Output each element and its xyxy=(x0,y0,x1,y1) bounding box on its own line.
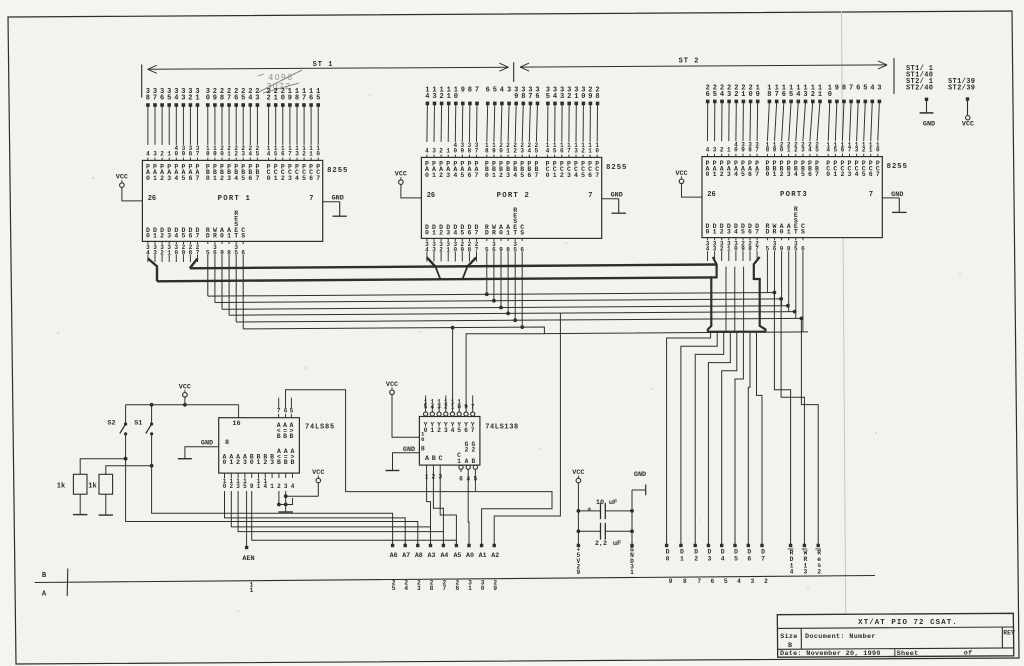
svg-text:4: 4 xyxy=(174,94,178,102)
svg-text:AEN: AEN xyxy=(242,555,254,563)
svg-text:5: 5 xyxy=(181,232,185,239)
svg-text:GND: GND xyxy=(923,121,935,129)
svg-text:0: 0 xyxy=(316,150,320,157)
svg-text:7: 7 xyxy=(153,94,157,102)
svg-text:4: 4 xyxy=(248,94,252,102)
svg-text:B: B xyxy=(284,459,288,466)
svg-text:A8: A8 xyxy=(415,552,423,559)
svg-text:6: 6 xyxy=(748,229,752,236)
svg-text:3: 3 xyxy=(417,585,421,592)
svg-text:3: 3 xyxy=(801,147,805,154)
svg-text:1: 1 xyxy=(270,483,274,490)
svg-text:5: 5 xyxy=(833,147,837,154)
svg-text:D: D xyxy=(694,549,698,556)
svg-text:2: 2 xyxy=(780,171,784,178)
svg-text:5: 5 xyxy=(256,150,260,157)
svg-text:S: S xyxy=(520,229,524,236)
svg-text:6: 6 xyxy=(248,175,252,182)
svg-text:1: 1 xyxy=(457,458,461,465)
svg-text:D: D xyxy=(485,229,489,236)
svg-text:2: 2 xyxy=(234,150,238,157)
svg-text:5: 5 xyxy=(392,585,396,592)
svg-text:3: 3 xyxy=(750,578,754,585)
svg-text:0: 0 xyxy=(453,147,457,154)
svg-text:1: 1 xyxy=(446,147,450,154)
svg-text:5: 5 xyxy=(863,85,867,93)
svg-text:4: 4 xyxy=(737,578,741,585)
svg-text:3: 3 xyxy=(877,85,881,93)
svg-text:3: 3 xyxy=(446,229,450,236)
svg-text:1: 1 xyxy=(229,459,233,466)
svg-text:1: 1 xyxy=(250,587,254,594)
svg-text:S1: S1 xyxy=(134,420,142,428)
svg-text:1: 1 xyxy=(153,232,157,239)
svg-text:6: 6 xyxy=(464,427,468,434)
svg-text:7: 7 xyxy=(697,578,701,585)
svg-text:1: 1 xyxy=(213,175,217,182)
svg-text:D: D xyxy=(721,549,725,556)
svg-text:6: 6 xyxy=(869,171,873,178)
svg-text:2: 2 xyxy=(840,171,844,178)
svg-text:7: 7 xyxy=(588,192,592,200)
svg-text:2: 2 xyxy=(817,568,821,575)
svg-text:3: 3 xyxy=(567,172,571,179)
svg-text:1: 1 xyxy=(630,569,634,576)
svg-text:4: 4 xyxy=(721,556,725,563)
svg-text:7: 7 xyxy=(755,171,759,178)
svg-text:7: 7 xyxy=(849,85,853,93)
svg-text:8: 8 xyxy=(430,585,434,592)
svg-text:6: 6 xyxy=(706,91,710,99)
svg-text:6: 6 xyxy=(856,85,860,93)
svg-text:3: 3 xyxy=(243,459,247,466)
svg-text:9: 9 xyxy=(492,147,496,154)
svg-text:2: 2 xyxy=(471,447,475,454)
svg-text:7: 7 xyxy=(534,172,538,179)
svg-text:9: 9 xyxy=(464,404,468,411)
svg-text:7: 7 xyxy=(475,172,479,179)
svg-text:A: A xyxy=(42,591,47,599)
svg-text:2: 2 xyxy=(465,447,469,454)
svg-text:1: 1 xyxy=(257,483,261,490)
svg-text:1: 1 xyxy=(869,147,873,154)
svg-text:4: 4 xyxy=(404,585,408,592)
svg-text:4: 4 xyxy=(146,150,150,157)
svg-text:7: 7 xyxy=(196,232,200,239)
svg-text:0: 0 xyxy=(250,459,254,466)
svg-text:3: 3 xyxy=(288,175,292,182)
svg-text:3: 3 xyxy=(507,87,511,95)
svg-text:7: 7 xyxy=(227,94,231,102)
svg-text:26: 26 xyxy=(427,192,435,200)
svg-text:4: 4 xyxy=(234,175,238,182)
svg-text:1k: 1k xyxy=(88,483,96,491)
svg-text:5: 5 xyxy=(460,229,464,236)
svg-text:0: 0 xyxy=(223,483,227,490)
svg-text:D: D xyxy=(734,549,738,556)
svg-text:4: 4 xyxy=(267,150,271,157)
svg-text:S2: S2 xyxy=(107,420,115,428)
svg-text:D: D xyxy=(765,229,769,236)
svg-text:1: 1 xyxy=(274,175,278,182)
svg-text:0: 0 xyxy=(734,147,738,154)
svg-text:B: B xyxy=(277,459,281,466)
svg-text:4: 4 xyxy=(794,171,798,178)
svg-text:A1: A1 xyxy=(479,552,487,559)
svg-text:4: 4 xyxy=(430,404,434,411)
svg-text:Sheet: Sheet xyxy=(897,650,919,658)
svg-text:3: 3 xyxy=(707,556,711,563)
svg-text:A: A xyxy=(465,458,469,465)
svg-text:7: 7 xyxy=(815,171,819,178)
svg-text:9: 9 xyxy=(213,94,217,102)
svg-text:2: 2 xyxy=(263,459,267,466)
svg-text:0: 0 xyxy=(267,175,271,182)
svg-text:3: 3 xyxy=(787,171,791,178)
svg-text:9: 9 xyxy=(835,85,839,93)
svg-text:3: 3 xyxy=(727,229,731,236)
svg-text:9: 9 xyxy=(288,94,292,102)
svg-text:4: 4 xyxy=(527,147,531,154)
svg-text:B: B xyxy=(283,433,287,440)
svg-text:5: 5 xyxy=(181,175,185,182)
svg-text:7: 7 xyxy=(528,93,532,101)
svg-text:6: 6 xyxy=(160,94,164,102)
svg-text:8: 8 xyxy=(206,150,210,157)
svg-text:PORT 2: PORT 2 xyxy=(497,192,530,200)
svg-text:4: 4 xyxy=(808,147,812,154)
svg-text:9: 9 xyxy=(741,147,745,154)
svg-text:1: 1 xyxy=(274,94,278,102)
svg-text:5: 5 xyxy=(241,94,245,102)
svg-text:2: 2 xyxy=(581,147,585,154)
svg-text:4: 4 xyxy=(546,147,550,154)
svg-text:Date: November 20, 1990: Date: November 20, 1990 xyxy=(780,650,881,658)
svg-text:1: 1 xyxy=(492,172,496,179)
svg-text:1: 1 xyxy=(167,150,171,157)
svg-text:0: 0 xyxy=(666,556,670,563)
svg-text:5: 5 xyxy=(535,147,539,154)
svg-text:5: 5 xyxy=(243,483,247,490)
svg-text:4: 4 xyxy=(451,427,455,434)
svg-text:4: 4 xyxy=(425,147,429,154)
svg-text:9: 9 xyxy=(773,147,777,154)
svg-text:9: 9 xyxy=(493,585,497,592)
svg-text:5: 5 xyxy=(581,172,585,179)
svg-text:9: 9 xyxy=(577,569,581,576)
svg-text:7: 7 xyxy=(471,404,475,411)
svg-text:4: 4 xyxy=(291,483,295,490)
svg-text:A7: A7 xyxy=(402,552,410,559)
svg-text:9: 9 xyxy=(182,150,186,157)
svg-text:7: 7 xyxy=(595,172,599,179)
svg-text:6: 6 xyxy=(467,229,471,236)
svg-text:3: 3 xyxy=(713,147,717,154)
svg-text:6: 6 xyxy=(588,172,592,179)
svg-text:2: 2 xyxy=(444,404,448,411)
svg-text:6: 6 xyxy=(782,91,786,99)
svg-text:5: 5 xyxy=(424,404,428,411)
svg-text:R: R xyxy=(492,229,496,236)
svg-text:2: 2 xyxy=(439,172,443,179)
svg-text:0: 0 xyxy=(706,171,710,178)
svg-text:7: 7 xyxy=(302,94,306,102)
svg-text:7: 7 xyxy=(255,175,259,182)
svg-text:1: 1 xyxy=(773,171,777,178)
svg-text:9: 9 xyxy=(213,150,217,157)
svg-text:4: 4 xyxy=(796,91,800,99)
svg-text:6: 6 xyxy=(527,172,531,179)
svg-text:7: 7 xyxy=(316,175,320,182)
svg-text:6: 6 xyxy=(234,94,238,102)
svg-text:4: 4 xyxy=(553,93,557,101)
svg-text:1: 1 xyxy=(430,427,434,434)
svg-text:3: 3 xyxy=(241,150,245,157)
svg-text:1: 1 xyxy=(432,172,436,179)
svg-text:1: 1 xyxy=(713,229,717,236)
svg-text:B: B xyxy=(788,642,792,650)
svg-text:5: 5 xyxy=(520,172,524,179)
svg-text:2: 2 xyxy=(160,175,164,182)
svg-text:7: 7 xyxy=(277,408,281,415)
svg-text:B: B xyxy=(432,455,436,463)
svg-text:7: 7 xyxy=(196,175,200,182)
svg-text:9: 9 xyxy=(756,91,760,99)
svg-text:5: 5 xyxy=(493,87,497,95)
svg-text:2: 2 xyxy=(567,93,571,101)
svg-text:4: 4 xyxy=(500,87,504,95)
svg-text:5: 5 xyxy=(724,578,728,585)
svg-text:T: T xyxy=(794,229,798,236)
svg-text:1: 1 xyxy=(432,229,436,236)
svg-text:0: 0 xyxy=(220,232,224,239)
svg-text:3: 3 xyxy=(432,93,436,101)
svg-text:7: 7 xyxy=(869,191,873,199)
svg-text:5: 5 xyxy=(546,93,550,101)
svg-text:D: D xyxy=(761,549,765,556)
svg-text:2: 2 xyxy=(720,147,724,154)
svg-text:1: 1 xyxy=(309,150,313,157)
svg-text:1: 1 xyxy=(227,150,231,157)
svg-text:0: 0 xyxy=(146,175,150,182)
svg-text:4: 4 xyxy=(706,147,710,154)
svg-text:3: 3 xyxy=(437,404,441,411)
svg-text:4: 4 xyxy=(513,172,517,179)
svg-text:5: 5 xyxy=(167,94,171,102)
svg-text:74LS138: 74LS138 xyxy=(485,424,519,432)
svg-text:3: 3 xyxy=(855,147,859,154)
svg-text:0: 0 xyxy=(481,585,485,592)
svg-text:REV: REV xyxy=(1003,630,1015,637)
svg-text:4: 4 xyxy=(453,172,457,179)
svg-text:4: 4 xyxy=(248,150,252,157)
svg-text:3: 3 xyxy=(727,171,731,178)
svg-text:8: 8 xyxy=(220,94,224,102)
svg-text:0: 0 xyxy=(828,91,832,99)
svg-text:1: 1 xyxy=(553,172,557,179)
svg-text:XT/AT PIO 72 CSAT.: XT/AT PIO 72 CSAT. xyxy=(858,619,958,627)
svg-text:7: 7 xyxy=(761,556,765,563)
svg-text:3: 3 xyxy=(803,91,807,99)
svg-text:uF: uF xyxy=(609,499,617,506)
svg-text:8: 8 xyxy=(683,578,687,585)
svg-text:0: 0 xyxy=(826,171,830,178)
svg-text:5: 5 xyxy=(734,556,738,563)
svg-text:4: 4 xyxy=(174,232,178,239)
svg-text:7: 7 xyxy=(443,585,447,592)
svg-text:A3: A3 xyxy=(428,552,436,559)
svg-text:D: D xyxy=(666,549,670,556)
svg-text:2: 2 xyxy=(281,175,285,182)
svg-text:3: 3 xyxy=(727,91,731,99)
svg-text:7: 7 xyxy=(755,147,759,154)
svg-text:6: 6 xyxy=(808,171,812,178)
svg-text:B: B xyxy=(277,433,281,440)
svg-text:8: 8 xyxy=(748,147,752,154)
svg-text:5: 5 xyxy=(302,175,306,182)
svg-text:5: 5 xyxy=(457,427,461,434)
svg-text:6: 6 xyxy=(467,172,471,179)
svg-text:PORT3: PORT3 xyxy=(780,191,808,199)
svg-text:2: 2 xyxy=(720,171,724,178)
svg-text:3: 3 xyxy=(255,94,259,102)
svg-text:0: 0 xyxy=(876,147,880,154)
svg-text:7: 7 xyxy=(471,427,475,434)
svg-text:1: 1 xyxy=(713,171,717,178)
svg-text:A2: A2 xyxy=(491,552,499,559)
svg-text:6: 6 xyxy=(748,171,752,178)
svg-text:D: D xyxy=(206,232,210,239)
svg-text:7: 7 xyxy=(755,229,759,236)
svg-text:8: 8 xyxy=(767,91,771,99)
svg-text:8: 8 xyxy=(189,150,193,157)
svg-text:1: 1 xyxy=(447,93,451,101)
svg-text:0: 0 xyxy=(748,91,752,99)
svg-text:5: 5 xyxy=(741,229,745,236)
svg-text:6: 6 xyxy=(281,150,285,157)
svg-text:8: 8 xyxy=(295,94,299,102)
svg-text:0: 0 xyxy=(146,232,150,239)
svg-text:ST 2: ST 2 xyxy=(679,58,700,66)
svg-text:A0: A0 xyxy=(466,552,474,559)
svg-text:1: 1 xyxy=(227,232,231,239)
svg-text:of: of xyxy=(964,650,973,658)
svg-text:8255: 8255 xyxy=(327,167,348,175)
svg-text:5: 5 xyxy=(713,91,717,99)
svg-text:8: 8 xyxy=(485,147,489,154)
svg-text:0: 0 xyxy=(223,459,227,466)
svg-text:2: 2 xyxy=(302,150,306,157)
svg-text:4: 4 xyxy=(734,229,738,236)
svg-text:2: 2 xyxy=(811,91,815,99)
svg-text:6: 6 xyxy=(560,147,564,154)
svg-text:0: 0 xyxy=(780,229,784,236)
svg-text:Size: Size xyxy=(780,633,797,640)
svg-text:3: 3 xyxy=(295,150,299,157)
svg-text:4: 4 xyxy=(295,175,299,182)
svg-text:6: 6 xyxy=(188,175,192,182)
svg-text:2: 2 xyxy=(188,94,192,102)
svg-text:9: 9 xyxy=(588,93,592,101)
svg-text:6: 6 xyxy=(309,94,313,102)
svg-text:3: 3 xyxy=(153,150,157,157)
svg-text:0: 0 xyxy=(220,150,224,157)
svg-text:A6: A6 xyxy=(390,552,398,559)
svg-text:0: 0 xyxy=(706,229,710,236)
svg-text:16: 16 xyxy=(232,420,240,428)
svg-text:7: 7 xyxy=(288,150,292,157)
svg-text:26: 26 xyxy=(148,195,156,203)
svg-text:2: 2 xyxy=(794,147,798,154)
svg-text:1: 1 xyxy=(451,404,455,411)
svg-text:2: 2 xyxy=(513,147,517,154)
svg-text:3: 3 xyxy=(167,175,171,182)
svg-text:2: 2 xyxy=(694,556,698,563)
svg-text:3: 3 xyxy=(432,147,436,154)
svg-text:4: 4 xyxy=(453,229,457,236)
svg-text:6: 6 xyxy=(841,147,845,154)
svg-text:3: 3 xyxy=(284,483,288,490)
svg-text:3: 3 xyxy=(804,568,808,575)
svg-text:6: 6 xyxy=(421,436,425,443)
svg-text:3: 3 xyxy=(446,172,450,179)
svg-text:0: 0 xyxy=(281,94,285,102)
svg-text:S: S xyxy=(241,232,245,239)
svg-text:74LS85: 74LS85 xyxy=(305,424,335,432)
svg-text:2: 2 xyxy=(862,147,866,154)
svg-text:7: 7 xyxy=(876,171,880,178)
svg-text:R: R xyxy=(213,232,217,239)
svg-text:GND: GND xyxy=(634,471,646,479)
svg-text:Document: Number: Document: Number xyxy=(805,633,876,641)
svg-text:0: 0 xyxy=(499,147,503,154)
svg-text:5: 5 xyxy=(815,147,819,154)
svg-text:1: 1 xyxy=(787,147,791,154)
svg-text:3: 3 xyxy=(574,147,578,154)
svg-text:1: 1 xyxy=(195,94,199,102)
svg-text:4: 4 xyxy=(790,568,794,575)
svg-text:3: 3 xyxy=(506,172,510,179)
svg-text:4: 4 xyxy=(263,483,267,490)
svg-text:2: 2 xyxy=(437,427,441,434)
svg-text:0: 0 xyxy=(499,229,503,236)
svg-text:D: D xyxy=(747,549,751,556)
svg-text:4: 4 xyxy=(174,175,178,182)
svg-text:uF: uF xyxy=(613,540,621,547)
svg-text:1: 1 xyxy=(741,91,745,99)
svg-text:1k: 1k xyxy=(57,483,65,491)
svg-text:7: 7 xyxy=(848,147,852,154)
svg-text:2: 2 xyxy=(439,93,443,101)
svg-text:8: 8 xyxy=(766,147,770,154)
svg-text:6: 6 xyxy=(456,585,460,592)
svg-text:1: 1 xyxy=(153,175,157,182)
svg-text:1: 1 xyxy=(574,93,578,101)
svg-text:5: 5 xyxy=(741,171,745,178)
svg-text:2: 2 xyxy=(236,459,240,466)
svg-text:9: 9 xyxy=(669,578,673,585)
svg-text:B: B xyxy=(42,572,47,580)
svg-text:2: 2 xyxy=(439,147,443,154)
svg-text:ST2/40: ST2/40 xyxy=(906,84,933,92)
svg-text:2: 2 xyxy=(229,483,233,490)
svg-text:4: 4 xyxy=(826,147,830,154)
svg-text:6: 6 xyxy=(486,87,490,95)
svg-text:ST2/39: ST2/39 xyxy=(948,84,975,92)
svg-text:3: 3 xyxy=(181,94,185,102)
svg-text:B: B xyxy=(290,433,294,440)
svg-text:7: 7 xyxy=(475,147,479,154)
